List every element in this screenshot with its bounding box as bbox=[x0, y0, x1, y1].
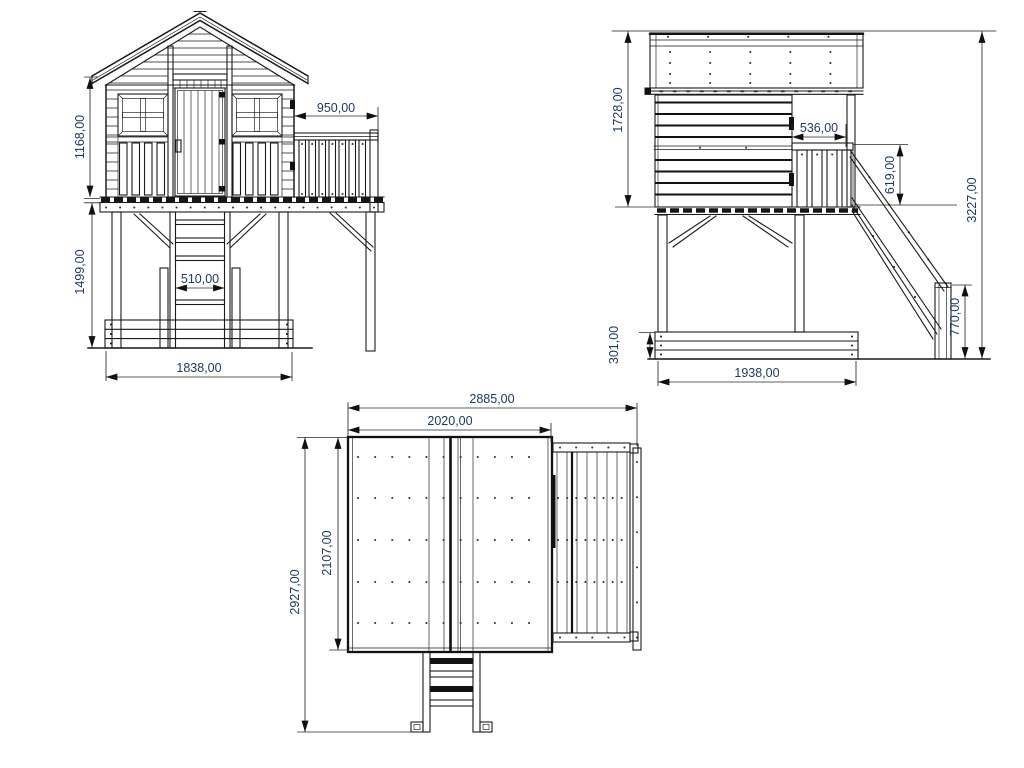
ladder-foot-right bbox=[480, 722, 492, 732]
side-view: 1728,00 3227,00 536,00 619,00 770,00 301… bbox=[607, 31, 996, 386]
door-hinge-top bbox=[219, 92, 226, 98]
door-latch bbox=[176, 140, 181, 152]
dim-top-total-width: 2885,00 bbox=[469, 392, 514, 406]
front-window-left bbox=[118, 94, 168, 136]
side-roof bbox=[612, 31, 996, 94]
top-balcony-door-mark bbox=[552, 475, 556, 548]
top-balcony bbox=[552, 443, 642, 650]
dim-side-balcony-depth: 536,00 bbox=[800, 121, 838, 135]
balcony-bracket-lower bbox=[290, 162, 295, 170]
side-bracket-upper bbox=[789, 117, 794, 130]
dim-side-railing-height: 619,00 bbox=[883, 156, 897, 194]
dim-front-wall-height: 1168,00 bbox=[73, 115, 87, 159]
dim-side-base-depth: 1938,00 bbox=[734, 366, 779, 380]
front-walls bbox=[106, 85, 295, 197]
side-bracket-lower bbox=[789, 173, 794, 186]
front-window-right bbox=[232, 94, 282, 136]
side-platform bbox=[655, 207, 860, 215]
side-understructure bbox=[658, 215, 804, 332]
front-roof bbox=[92, 12, 308, 84]
top-roof bbox=[348, 437, 552, 652]
door-hinge-bottom bbox=[219, 186, 226, 192]
top-view: 2885,00 2020,00 2107,00 2927,00 bbox=[288, 392, 641, 732]
ladder-foot-left bbox=[411, 722, 423, 732]
side-wall bbox=[654, 95, 855, 207]
top-ladder bbox=[411, 652, 492, 732]
playhouse-technical-drawing: 1168,00 1499,00 950,00 510,00 1838,00 bbox=[0, 0, 1024, 768]
dim-front-balcony-width: 950,00 bbox=[317, 101, 355, 115]
dim-side-house-height: 1728,00 bbox=[611, 87, 625, 132]
dim-top-roof-width: 2020,00 bbox=[427, 414, 472, 428]
dim-front-support-height: 1499,00 bbox=[73, 249, 87, 294]
dim-front-ladder-width: 510,00 bbox=[181, 272, 219, 286]
dim-top-total-depth: 2927,00 bbox=[288, 569, 302, 614]
balcony-support-post bbox=[366, 212, 375, 351]
dim-side-total-height: 3227,00 bbox=[965, 177, 979, 222]
front-platform bbox=[100, 197, 384, 212]
front-balcony bbox=[294, 130, 378, 351]
dim-side-sandbox-height: 301,00 bbox=[607, 326, 621, 364]
drawing-canvas: 1168,00 1499,00 950,00 510,00 1838,00 bbox=[0, 0, 1024, 768]
door-hinge-mid bbox=[219, 139, 226, 145]
dim-side-slide-exit-height: 770,00 bbox=[948, 298, 962, 336]
dim-top-roof-depth: 2107,00 bbox=[320, 530, 334, 575]
front-door bbox=[168, 46, 232, 197]
top-slide-rail bbox=[633, 448, 641, 650]
dim-front-base-width: 1838,00 bbox=[176, 361, 221, 375]
side-slide bbox=[850, 150, 951, 359]
balcony-bracket-upper bbox=[290, 100, 295, 109]
side-railing bbox=[792, 143, 853, 207]
front-view: 1168,00 1499,00 950,00 510,00 1838,00 bbox=[73, 12, 384, 382]
